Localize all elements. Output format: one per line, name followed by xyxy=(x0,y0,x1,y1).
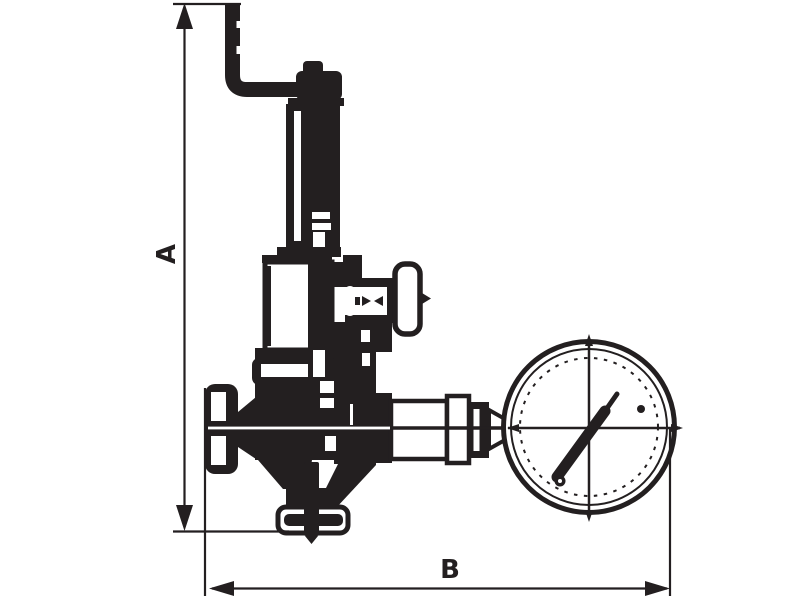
body-centerline xyxy=(208,427,390,430)
valve-assembly xyxy=(205,4,512,544)
screw-mark xyxy=(355,297,360,305)
fitting-cylinder xyxy=(391,401,447,459)
knob-highlight xyxy=(211,436,226,465)
vent-pipe-run xyxy=(233,4,299,90)
tee-handle xyxy=(395,264,431,334)
gauge-connection-fitting xyxy=(376,393,512,463)
chamber-column xyxy=(308,262,334,362)
cylinder-highlight xyxy=(294,111,301,241)
arrowhead-up xyxy=(176,3,193,29)
housing-cap xyxy=(296,71,342,100)
dial-pin xyxy=(637,405,645,413)
outlet-stem-tip xyxy=(305,536,318,544)
valve-technical-drawing: A B xyxy=(0,0,800,598)
chamber-left-edge xyxy=(266,266,271,346)
handle-axis-tip xyxy=(422,293,431,304)
outlet-stem xyxy=(304,462,319,536)
ring-highlight xyxy=(474,409,480,451)
centerline-tick xyxy=(585,510,593,522)
vent-pipe xyxy=(233,4,299,90)
cylinder-band xyxy=(312,212,330,219)
cylinder-band xyxy=(313,232,325,247)
tee-handle-bar xyxy=(395,264,420,334)
cylinder-band xyxy=(312,223,331,230)
arrowhead-right xyxy=(645,581,670,596)
adjusting-screw xyxy=(334,278,395,352)
pipe-highlight xyxy=(237,46,241,54)
body-slot xyxy=(325,436,336,451)
body-main xyxy=(255,383,375,460)
screw-slot xyxy=(361,330,370,342)
arrowhead-left xyxy=(209,581,234,596)
pressure-gauge xyxy=(504,334,684,522)
union-nut-highlight xyxy=(261,364,308,377)
screw-mark-arrow xyxy=(362,296,371,306)
knob-highlight xyxy=(211,392,226,421)
dimension-a-label: A xyxy=(152,244,182,264)
dimension-b-label: B xyxy=(440,555,460,585)
screw-divider xyxy=(387,280,393,323)
screw-bottom-bar xyxy=(345,315,393,323)
body-bottom-taper xyxy=(258,460,312,489)
body-slot xyxy=(313,350,325,377)
body-detail xyxy=(320,398,334,408)
housing-base-step xyxy=(343,255,362,263)
drawing-canvas: A B xyxy=(0,0,800,598)
body-detail xyxy=(350,404,353,425)
arrowhead-down xyxy=(176,505,193,531)
screw-mark-arrow xyxy=(374,296,383,306)
needle-hub-center xyxy=(558,479,562,483)
pipe-highlight xyxy=(237,21,241,28)
body-detail xyxy=(320,381,334,393)
centerline-tick xyxy=(671,424,683,432)
body-slot xyxy=(362,353,370,366)
